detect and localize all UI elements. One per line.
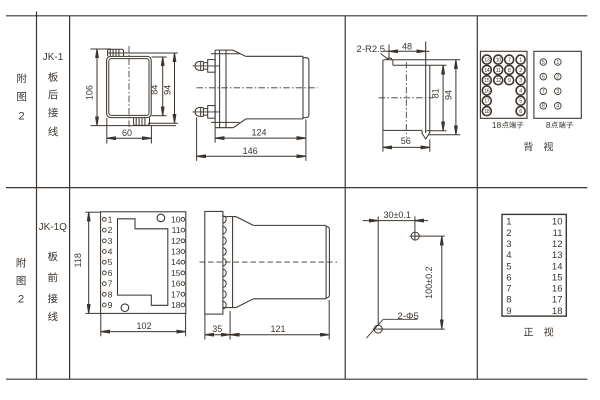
svg-text:5: 5: [542, 60, 545, 66]
svg-text:12: 12: [171, 236, 181, 246]
svg-text:7: 7: [508, 58, 511, 64]
svg-text:1: 1: [506, 217, 511, 228]
svg-text:9: 9: [508, 78, 511, 84]
svg-text:9: 9: [506, 306, 511, 317]
svg-text:2: 2: [519, 68, 522, 74]
svg-text:124: 124: [251, 128, 266, 138]
svg-text:15: 15: [171, 268, 181, 278]
svg-text:146: 146: [243, 146, 258, 156]
svg-text:10: 10: [171, 214, 181, 224]
svg-text:7: 7: [506, 284, 511, 295]
svg-text:12: 12: [496, 78, 502, 84]
svg-text:8: 8: [506, 295, 511, 306]
svg-text:9: 9: [108, 300, 113, 310]
svg-text:60: 60: [122, 128, 132, 138]
svg-text:14: 14: [552, 261, 563, 272]
svg-text:3: 3: [108, 236, 113, 246]
svg-text:48: 48: [402, 42, 412, 52]
svg-text:2: 2: [506, 228, 511, 239]
svg-text:18: 18: [171, 300, 181, 310]
svg-text:81: 81: [431, 88, 441, 98]
svg-text:5: 5: [506, 261, 511, 272]
svg-text:1: 1: [108, 214, 113, 224]
svg-text:5: 5: [108, 257, 113, 267]
svg-text:11: 11: [496, 68, 501, 74]
svg-text:8: 8: [108, 289, 113, 299]
svg-text:11: 11: [553, 228, 563, 239]
svg-text:106: 106: [84, 85, 94, 100]
svg-text:2: 2: [18, 293, 24, 305]
svg-text:18: 18: [552, 306, 563, 317]
svg-text:3: 3: [506, 239, 511, 250]
svg-text:2-Φ5: 2-Φ5: [398, 311, 419, 322]
svg-text:18: 18: [484, 109, 490, 115]
svg-text:121: 121: [270, 324, 285, 334]
svg-text:118: 118: [73, 253, 83, 267]
svg-text:6: 6: [542, 74, 545, 80]
svg-text:1: 1: [519, 58, 522, 64]
svg-text:4: 4: [108, 247, 113, 257]
svg-text:7: 7: [108, 279, 113, 289]
svg-text:8: 8: [508, 68, 511, 74]
svg-text:1: 1: [556, 60, 559, 66]
svg-text:JK-1: JK-1: [43, 52, 64, 63]
svg-text:14: 14: [484, 68, 490, 74]
svg-text:18: 18: [492, 120, 502, 130]
svg-text:10: 10: [552, 217, 563, 228]
svg-text:16: 16: [552, 284, 563, 295]
svg-text:2: 2: [108, 225, 113, 235]
svg-text:94: 94: [443, 90, 453, 100]
svg-text:3: 3: [556, 89, 559, 95]
svg-text:14: 14: [171, 257, 181, 267]
svg-text:6: 6: [519, 109, 522, 115]
svg-text:30±0.1: 30±0.1: [383, 210, 410, 220]
svg-text:11: 11: [172, 225, 181, 235]
svg-text:94: 94: [162, 85, 172, 95]
svg-text:16: 16: [484, 88, 490, 94]
svg-text:13: 13: [552, 250, 563, 261]
svg-text:6: 6: [506, 272, 511, 283]
svg-text:4: 4: [506, 250, 511, 261]
svg-text:15: 15: [484, 78, 490, 84]
svg-text:15: 15: [552, 272, 563, 283]
svg-text:4: 4: [519, 88, 522, 94]
svg-text:8: 8: [546, 120, 551, 130]
svg-text:4: 4: [556, 104, 559, 110]
svg-text:6: 6: [108, 268, 113, 278]
svg-text:17: 17: [484, 99, 490, 105]
svg-text:100±0.2: 100±0.2: [424, 266, 434, 298]
svg-text:84: 84: [150, 85, 160, 95]
svg-text:102: 102: [136, 321, 151, 331]
svg-text:10: 10: [496, 58, 502, 64]
svg-text:56: 56: [401, 136, 411, 146]
svg-text:35: 35: [212, 324, 222, 334]
svg-text:2: 2: [18, 110, 24, 122]
svg-text:12: 12: [552, 239, 563, 250]
svg-text:JK-1Q: JK-1Q: [39, 222, 68, 233]
svg-text:17: 17: [171, 289, 181, 299]
svg-text:3: 3: [519, 78, 522, 84]
svg-text:13: 13: [171, 247, 181, 257]
svg-text:17: 17: [552, 295, 563, 306]
svg-text:7: 7: [542, 89, 545, 95]
svg-text:2: 2: [556, 74, 559, 80]
svg-text:16: 16: [171, 279, 181, 289]
svg-text:8: 8: [542, 104, 545, 110]
svg-text:5: 5: [519, 99, 522, 105]
svg-text:13: 13: [484, 58, 490, 64]
